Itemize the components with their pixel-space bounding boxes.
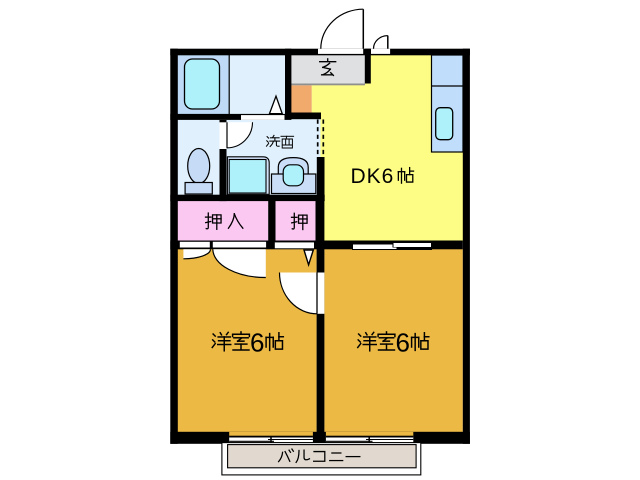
svg-text:DK6: DK6 (351, 165, 395, 188)
svg-text:6: 6 (250, 328, 264, 358)
svg-text:6: 6 (396, 328, 410, 358)
